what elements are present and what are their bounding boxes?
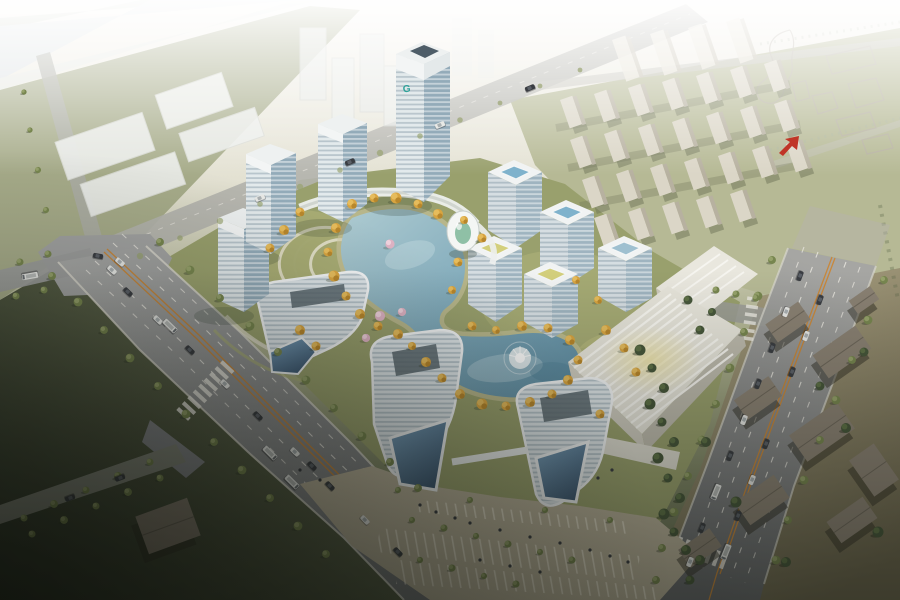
rendering-canvas: G xyxy=(0,0,900,600)
aerial-rendering: G xyxy=(0,0,900,600)
vignette-corner xyxy=(0,0,900,600)
